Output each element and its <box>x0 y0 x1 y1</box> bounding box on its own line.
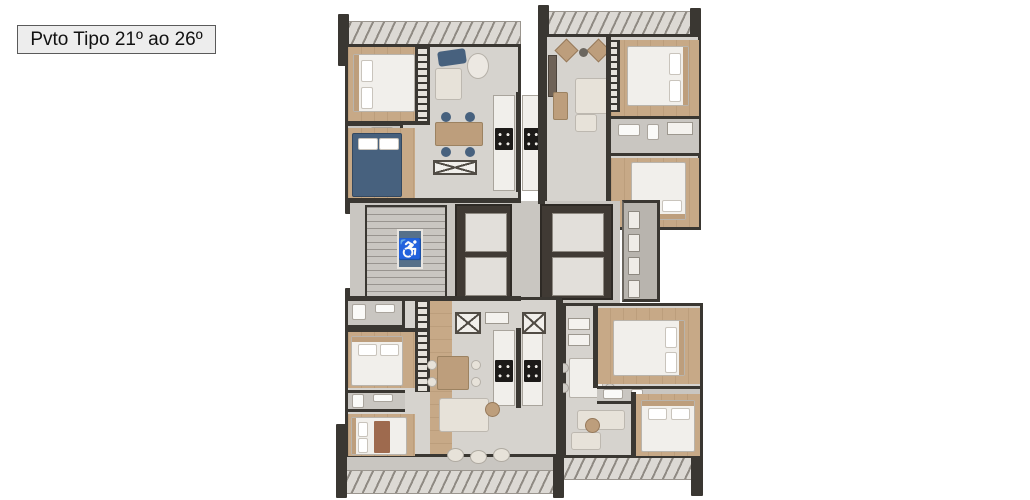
unit-c-dining-table <box>437 356 469 390</box>
unit-a-chair <box>465 112 475 122</box>
unit-c-pouf <box>447 448 464 462</box>
unit-b-side-table <box>579 48 588 57</box>
unit-d-vanity <box>603 389 623 399</box>
unit-d-wall <box>593 306 598 388</box>
wall-core-top <box>345 198 521 203</box>
unit-c-stove <box>495 360 513 382</box>
unit-a-rug-round <box>467 53 489 79</box>
ac-condenser-unit <box>628 257 640 275</box>
wall-core-bottom <box>345 296 521 301</box>
unit-b-coffee-table <box>553 92 568 120</box>
unit-c-sink1 <box>375 304 395 313</box>
wall-unit-a-interior <box>345 121 430 125</box>
elevator-car <box>552 257 604 296</box>
unit-c-pouf <box>493 448 510 462</box>
elevator-car <box>465 257 507 296</box>
unit-d-sofa-chaise <box>571 432 601 450</box>
unit-d-bed1 <box>613 320 685 376</box>
ac-technical-balcony <box>622 200 660 302</box>
unit-b-sofa-chaise <box>575 114 597 132</box>
unit-d-wall2 <box>631 392 636 456</box>
unit-c-chair <box>427 360 437 370</box>
unit-d-laundry-cabinet <box>522 312 546 334</box>
unit-c-bed1 <box>351 336 403 386</box>
wall-unit-c-interior <box>345 328 430 332</box>
unit-d-coffee-table <box>585 418 600 433</box>
balcony-bottom-left-rail <box>340 470 562 494</box>
unit-a-chair <box>441 112 451 122</box>
unit-a-dining-table <box>435 122 483 146</box>
unit-a-wardrobe <box>415 47 430 125</box>
unit-c-side-table <box>485 402 500 417</box>
ac-condenser-unit <box>628 211 640 229</box>
balcony-top-right <box>543 11 701 35</box>
unit-c-chair <box>471 377 481 387</box>
elevator-car <box>465 213 507 252</box>
unit-c-chair <box>427 377 437 387</box>
unit-c-toilet2 <box>352 394 364 408</box>
elevator-car <box>552 213 604 252</box>
ac-condenser-unit <box>628 234 640 252</box>
unit-d-stove <box>524 360 541 382</box>
unit-c-pouf <box>470 450 487 464</box>
ac-condenser-unit <box>628 280 640 298</box>
unit-a-bed1 <box>353 54 415 112</box>
unit-d-washer <box>568 318 590 330</box>
unit-b-vanity <box>618 124 640 136</box>
kitchen-divider-wall-top <box>516 92 521 192</box>
unit-b-bed1 <box>627 46 689 106</box>
unit-b-shower <box>667 122 693 135</box>
unit-c-toilet1 <box>352 304 366 320</box>
floorplan-page: { "label": { "text": "Pvto Tipo 21º ao 2… <box>0 0 1030 500</box>
unit-c-laundry-cabinet <box>455 312 481 334</box>
wall-separator-top-units <box>538 34 545 204</box>
unit-b-toilet <box>647 124 659 140</box>
wheelchair-accessibility-icon: ♿ <box>397 229 423 269</box>
balcony-top-left <box>340 21 521 45</box>
unit-d-dryer <box>568 334 590 346</box>
unit-a-bed2 <box>352 133 402 197</box>
unit-a-stove <box>495 128 513 150</box>
floor-label: Pvto Tipo 21º ao 26º <box>17 25 216 54</box>
balcony-bottom-right-rail <box>563 456 703 480</box>
unit-d-bed2 <box>641 400 695 452</box>
unit-c-sink2 <box>373 394 393 402</box>
unit-c-chair <box>471 360 481 370</box>
elevator-bank-left <box>455 204 512 300</box>
unit-c-sofa <box>439 398 489 432</box>
unit-c-washer <box>485 312 509 324</box>
kitchen-divider-wall-bottom <box>516 328 521 408</box>
unit-c-bed2 <box>351 417 407 455</box>
unit-a-chair <box>441 147 451 157</box>
unit-a-chair <box>465 147 475 157</box>
unit-b-wall <box>606 37 611 227</box>
unit-b-cabinet <box>548 55 557 97</box>
floor-plan: ♿ <box>335 0 705 500</box>
unit-a-sofa <box>435 68 462 100</box>
elevator-bank-right <box>540 204 613 300</box>
unit-a-tv-rack <box>433 160 477 175</box>
wall-separator-bottom-units <box>556 300 563 458</box>
